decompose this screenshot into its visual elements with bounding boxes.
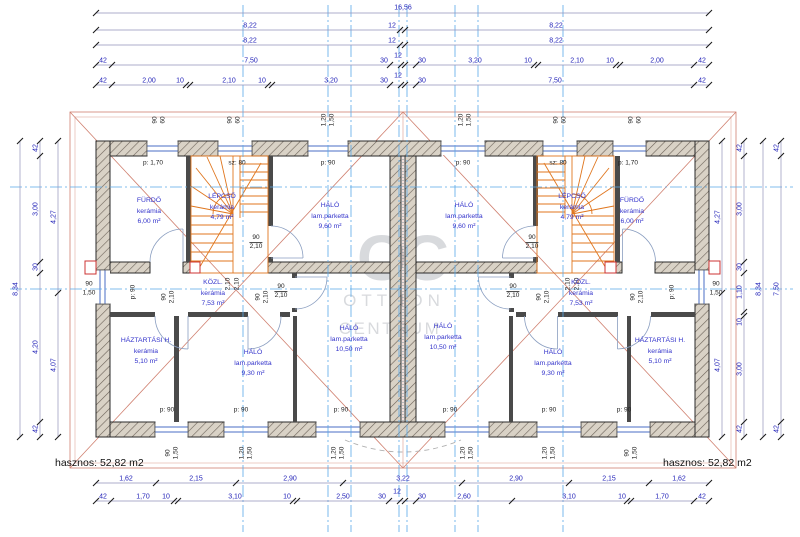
opening-label: 2,10 xyxy=(263,291,270,304)
room-label: LÉPCSŐkerámia4,79 m² xyxy=(558,192,586,224)
dim-label: 30 xyxy=(418,78,426,85)
opening-label: 1,50 xyxy=(466,114,473,127)
opening-label: 90 xyxy=(165,449,172,456)
opening-label: 1,50 xyxy=(339,447,346,460)
opening-label: sz: 80 xyxy=(549,160,566,167)
dim-label: 7,50 xyxy=(548,78,562,85)
opening-label: 1,50 xyxy=(632,447,639,460)
dim-label: 8,22 xyxy=(549,23,563,30)
dim-label: 2,10 xyxy=(222,78,236,85)
dim-label: 42 xyxy=(774,425,781,433)
opening-label: p: 90 xyxy=(542,407,556,414)
door-size-label: 902,10 xyxy=(274,283,287,301)
dim-label: 10 xyxy=(162,494,170,501)
dim-label: 3,10 xyxy=(562,494,576,501)
labels-layer: hasznos: 52,82 m2 hasznos: 52,82 m2 16,5… xyxy=(0,0,800,537)
opening-label: 90 xyxy=(85,281,92,288)
dim-label: 30 xyxy=(418,494,426,501)
dim-label: 16,56 xyxy=(394,5,412,12)
opening-label: 2,10 xyxy=(544,291,551,304)
dim-label: 1,62 xyxy=(119,476,133,483)
dim-label: 3,20 xyxy=(468,58,482,65)
dim-label: 10 xyxy=(283,494,291,501)
dim-label: 2,15 xyxy=(189,476,203,483)
opening-label: 1,20 xyxy=(321,114,328,127)
room-label: HÁLÓlam.parketta9,60 m² xyxy=(445,201,482,233)
opening-label: 1,20 xyxy=(458,114,465,127)
room-label: HÁLÓlam.parketta10,50 m² xyxy=(424,322,461,354)
opening-label: 60 xyxy=(636,116,643,123)
dim-label: 4,20 xyxy=(33,340,40,354)
dim-label: 4,27 xyxy=(51,210,58,224)
opening-label: p: 90 xyxy=(160,407,174,414)
room-label: HÁLÓlam.parketta10,50 m² xyxy=(330,324,367,356)
dim-label: 12 xyxy=(393,489,401,496)
floor-plan-drawing: OC OTTHON CENTRUM xyxy=(0,0,800,537)
opening-label: 90 xyxy=(536,293,543,300)
dim-label: 1,70 xyxy=(136,494,150,501)
dim-label: 2,10 xyxy=(570,58,584,65)
opening-label: 60 xyxy=(160,116,167,123)
opening-label: p: 1,70 xyxy=(143,160,163,167)
door-size-label: 902,10 xyxy=(249,234,262,252)
opening-label: p: 90 xyxy=(234,407,248,414)
opening-label: 90 xyxy=(255,293,262,300)
dim-label: 42 xyxy=(99,78,107,85)
dim-label: 8,22 xyxy=(549,38,563,45)
opening-label: 90 xyxy=(227,116,234,123)
dim-label: 12 xyxy=(394,53,402,60)
dim-label: 2,60 xyxy=(457,494,471,501)
opening-label: 60 xyxy=(561,116,568,123)
dim-label: 42 xyxy=(33,144,40,152)
room-label: HÁLÓlam.parketta9,30 m² xyxy=(234,348,271,380)
dim-label: 2,00 xyxy=(142,78,156,85)
dim-label: 30 xyxy=(418,58,426,65)
dim-label: 2,50 xyxy=(336,494,350,501)
opening-label: 90 xyxy=(553,116,560,123)
opening-label: 1,50 xyxy=(329,114,336,127)
dim-label: 30 xyxy=(380,78,388,85)
opening-label: p: 90 xyxy=(130,285,137,299)
opening-label: p: 90 xyxy=(669,285,676,299)
opening-label: 90 xyxy=(712,281,719,288)
dim-label: 8,22 xyxy=(243,23,257,30)
dim-label: 2,90 xyxy=(509,476,523,483)
dim-label: 3,10 xyxy=(228,494,242,501)
dim-label: 3,00 xyxy=(737,362,744,376)
opening-label: 1,20 xyxy=(331,447,338,460)
dim-label: 7,50 xyxy=(244,58,258,65)
dim-label: 12 xyxy=(388,23,396,30)
dim-label: 42 xyxy=(737,144,744,152)
dim-label: 12 xyxy=(388,38,396,45)
dim-label: 8,22 xyxy=(243,38,257,45)
opening-label: 2,10 xyxy=(638,291,645,304)
opening-label: p: 90 xyxy=(321,160,335,167)
dim-label: 10 xyxy=(606,58,614,65)
dim-label: 42 xyxy=(99,494,107,501)
dim-label: 3,20 xyxy=(324,78,338,85)
room-label: KÖZL.kerámia7,53 m² xyxy=(569,278,593,310)
dim-label: 2,90 xyxy=(283,476,297,483)
room-label: HÁZTARTÁSI H.kerámia5,10 m² xyxy=(635,336,685,368)
opening-label: 2,10 xyxy=(225,278,232,291)
opening-label: 1,50 xyxy=(247,447,254,460)
room-label: FÜRDŐkerámia6,00 m² xyxy=(620,196,644,228)
room-label: HÁLÓlam.parketta9,60 m² xyxy=(311,201,348,233)
dim-label: 10 xyxy=(618,494,626,501)
dim-label: 30 xyxy=(33,263,40,271)
opening-label: 60 xyxy=(235,116,242,123)
opening-label: 90 xyxy=(161,293,168,300)
room-label: LÉPCSŐkerámia4,79 m² xyxy=(208,192,236,224)
opening-label: 1,50 xyxy=(550,447,557,460)
opening-label: 1,50 xyxy=(83,290,96,297)
opening-label: 1,50 xyxy=(468,447,475,460)
door-size-label: 902,10 xyxy=(525,234,538,252)
dim-label: 10 xyxy=(737,318,744,326)
dim-label: 8,34 xyxy=(13,282,20,296)
opening-label: 90 xyxy=(630,293,637,300)
dim-label: 1,70 xyxy=(655,494,669,501)
dim-label: 7,50 xyxy=(774,282,781,296)
dim-label: 8,34 xyxy=(756,282,763,296)
dim-label: 3,00 xyxy=(33,202,40,216)
opening-label: 90 xyxy=(624,449,631,456)
door-size-label: 902,10 xyxy=(506,283,519,301)
dim-label: 30 xyxy=(737,263,744,271)
opening-label: p: 90 xyxy=(617,407,631,414)
dim-label: 4,07 xyxy=(51,358,58,372)
dim-label: 42 xyxy=(774,144,781,152)
opening-label: p: 90 xyxy=(443,407,457,414)
opening-label: p: 90 xyxy=(334,407,348,414)
opening-label: 90 xyxy=(628,116,635,123)
opening-label: 1,20 xyxy=(239,447,246,460)
dim-label: 4,27 xyxy=(715,210,722,224)
dim-label: 30 xyxy=(378,494,386,501)
opening-label: 1,50 xyxy=(710,290,723,297)
opening-label: 2,10 xyxy=(234,278,241,291)
dim-label: 1,62 xyxy=(672,476,686,483)
dim-label: 4,07 xyxy=(715,358,722,372)
dim-label: 12 xyxy=(394,73,402,80)
dim-label: 2,00 xyxy=(650,58,664,65)
dim-label: 42 xyxy=(698,494,706,501)
dim-label: 42 xyxy=(99,58,107,65)
opening-label: 1,20 xyxy=(460,447,467,460)
dim-label: 3,22 xyxy=(396,476,410,483)
room-label: FÜRDŐkerámia6,00 m² xyxy=(137,196,161,228)
opening-label: 1,20 xyxy=(542,447,549,460)
opening-label: p: 90 xyxy=(456,160,470,167)
opening-label: sz: 80 xyxy=(228,160,245,167)
dim-label: 3,00 xyxy=(737,202,744,216)
dim-label: 30 xyxy=(380,58,388,65)
opening-label: 1,50 xyxy=(173,447,180,460)
room-label: HÁLÓlam.parketta9,30 m² xyxy=(534,348,571,380)
dim-label: 42 xyxy=(737,425,744,433)
room-label: KÖZL.kerámia7,53 m² xyxy=(201,278,225,310)
dim-label: 10 xyxy=(176,78,184,85)
room-label: HÁZTARTÁSI H.kerámia5,10 m² xyxy=(121,336,171,368)
dim-label: 10 xyxy=(524,58,532,65)
dim-label: 10 xyxy=(258,78,266,85)
dim-label: 42 xyxy=(33,425,40,433)
dim-label: 42 xyxy=(698,78,706,85)
opening-label: 2,10 xyxy=(169,291,176,304)
opening-label: 90 xyxy=(152,116,159,123)
opening-label: p: 1,70 xyxy=(618,160,638,167)
usable-area-left: hasznos: 52,82 m2 xyxy=(55,457,144,469)
dim-label: 42 xyxy=(698,58,706,65)
dim-label: 1,10 xyxy=(737,285,744,299)
usable-area-right: hasznos: 52,82 m2 xyxy=(663,457,752,469)
dim-label: 2,15 xyxy=(602,476,616,483)
